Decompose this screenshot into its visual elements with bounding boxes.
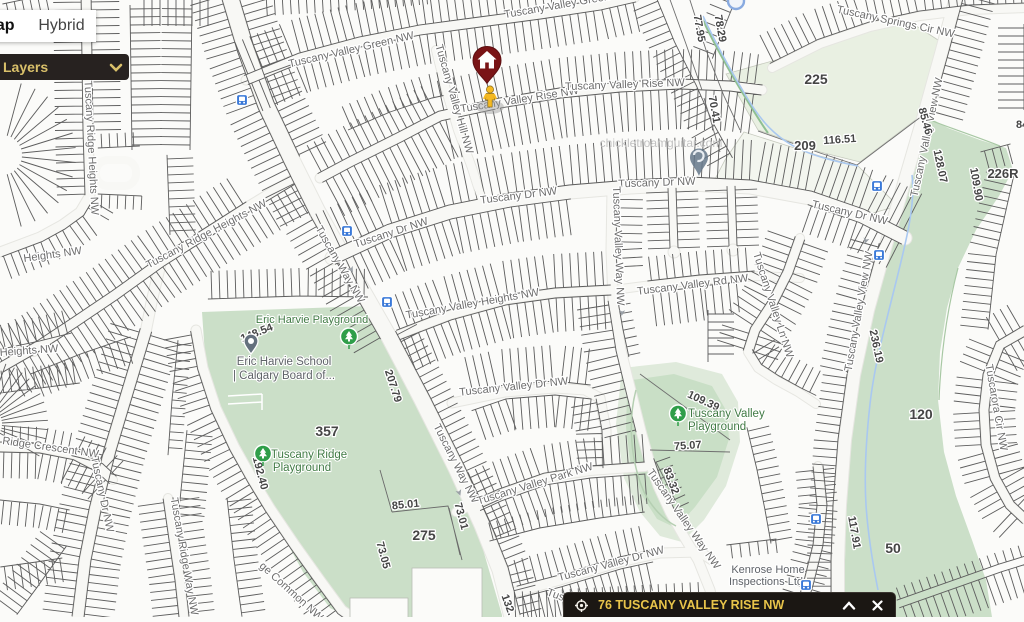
svg-text:Eric Harvie Playground: Eric Harvie Playground bbox=[256, 314, 369, 326]
svg-text:120: 120 bbox=[909, 406, 933, 422]
svg-text:Kenrose Home: Kenrose Home bbox=[731, 564, 804, 576]
svg-text:Playground: Playground bbox=[273, 462, 331, 474]
svg-text:Eric Harvie School: Eric Harvie School bbox=[237, 356, 332, 368]
svg-text:116.51: 116.51 bbox=[823, 133, 857, 147]
svg-text:226R: 226R bbox=[987, 166, 1019, 181]
svg-text:75.07: 75.07 bbox=[674, 439, 702, 453]
svg-text:Inspections Ltd: Inspections Ltd bbox=[729, 576, 803, 588]
svg-text:225: 225 bbox=[804, 71, 828, 87]
svg-text:209: 209 bbox=[794, 138, 816, 153]
svg-text:275: 275 bbox=[412, 527, 436, 543]
svg-text:Playground: Playground bbox=[688, 421, 746, 433]
svg-text:chickletroamguitar.com: chickletroamguitar.com bbox=[600, 136, 723, 150]
svg-text:| Calgary Board of...: | Calgary Board of... bbox=[233, 370, 335, 382]
svg-text:357: 357 bbox=[315, 423, 339, 439]
svg-text:84.8: 84.8 bbox=[1016, 119, 1024, 131]
svg-text:Tuscany Valley: Tuscany Valley bbox=[688, 408, 765, 420]
svg-text:Tuscany Ridge: Tuscany Ridge bbox=[271, 449, 347, 461]
svg-text:50: 50 bbox=[885, 540, 901, 556]
